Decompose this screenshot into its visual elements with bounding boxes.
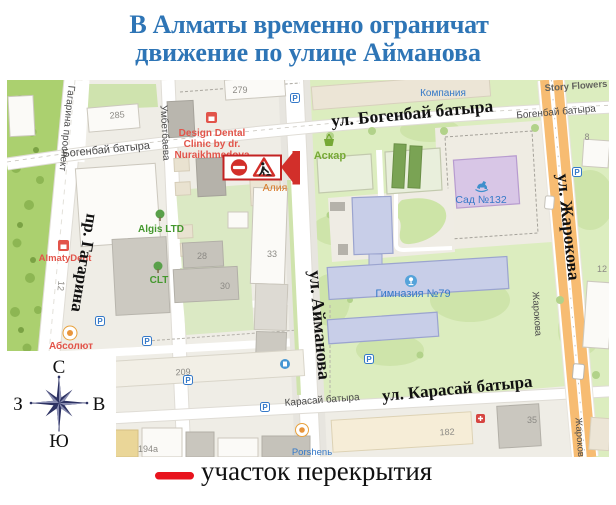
svg-text:35: 35 xyxy=(527,415,537,425)
svg-text:Аскар: Аскар xyxy=(314,150,347,162)
svg-text:С: С xyxy=(53,357,66,378)
svg-text:8: 8 xyxy=(584,132,589,142)
svg-text:30: 30 xyxy=(220,281,230,291)
svg-text:Design Dental: Design Dental xyxy=(179,128,246,139)
svg-text:P: P xyxy=(262,403,268,412)
svg-text:12: 12 xyxy=(56,280,67,291)
svg-text:участок перекрытия: участок перекрытия xyxy=(201,456,432,486)
svg-text:194а: 194а xyxy=(138,444,158,454)
svg-text:Абсолют: Абсолют xyxy=(49,340,93,352)
svg-text:182: 182 xyxy=(439,427,455,438)
svg-text:Алия: Алия xyxy=(263,182,288,194)
svg-text:Clinic by dr.: Clinic by dr. xyxy=(184,139,241,150)
svg-text:CLT: CLT xyxy=(150,275,169,286)
svg-text:P: P xyxy=(97,317,103,326)
svg-text:P: P xyxy=(574,168,580,177)
svg-text:Ю: Ю xyxy=(49,431,69,452)
svg-text:Algis LTD: Algis LTD xyxy=(138,224,184,235)
svg-text:209: 209 xyxy=(175,367,191,378)
svg-text:Компания: Компания xyxy=(420,88,466,99)
svg-text:P: P xyxy=(144,337,150,346)
svg-text:В: В xyxy=(93,394,106,415)
svg-text:P: P xyxy=(185,376,191,385)
svg-text:279: 279 xyxy=(232,85,247,95)
svg-text:движение по улице Айманова: движение по улице Айманова xyxy=(135,38,481,67)
svg-text:33: 33 xyxy=(267,249,277,259)
svg-text:Сад №132: Сад №132 xyxy=(455,194,507,206)
svg-text:Гимназия №79: Гимназия №79 xyxy=(375,288,450,300)
svg-text:285: 285 xyxy=(109,109,125,120)
svg-text:З: З xyxy=(13,394,23,415)
svg-text:В Алматы временно ограничат: В Алматы временно ограничат xyxy=(129,10,489,39)
svg-text:28: 28 xyxy=(197,251,207,261)
svg-text:P: P xyxy=(292,94,298,103)
svg-text:P: P xyxy=(366,355,372,364)
svg-text:12: 12 xyxy=(597,264,607,274)
